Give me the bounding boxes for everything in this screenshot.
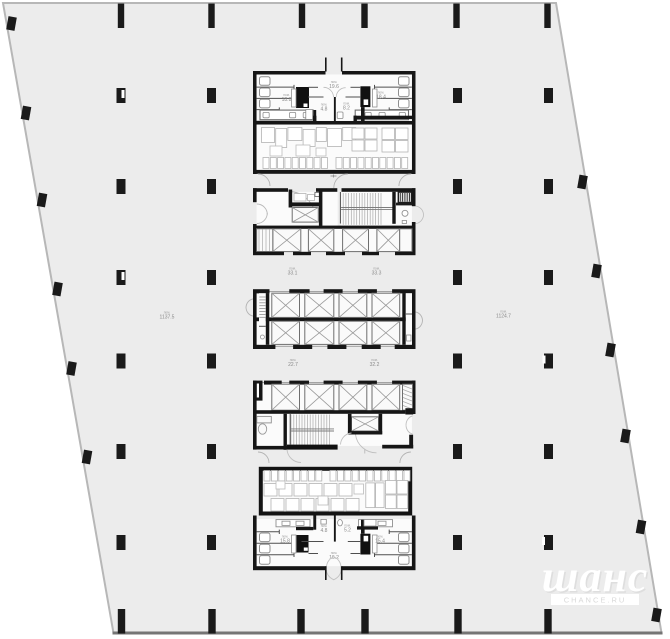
svg-text:32.2: 32.2: [370, 362, 380, 368]
svg-text:19.6: 19.6: [329, 84, 339, 90]
svg-text:15.4: 15.4: [375, 539, 385, 545]
svg-text:5.2: 5.2: [344, 528, 351, 534]
svg-text:1137.5: 1137.5: [160, 315, 175, 321]
svg-text:8.2: 8.2: [343, 106, 350, 112]
svg-text:4.8: 4.8: [321, 107, 328, 113]
svg-text:18.8: 18.8: [282, 97, 292, 103]
svg-text:33.3: 33.3: [372, 271, 382, 277]
svg-text:22.7: 22.7: [288, 362, 298, 368]
svg-text:18.4: 18.4: [376, 95, 386, 101]
svg-text:15.8: 15.8: [280, 539, 290, 545]
svg-text:33.1: 33.1: [288, 271, 298, 277]
svg-text:1124.7: 1124.7: [496, 314, 511, 320]
svg-text:шанс: шанс: [542, 552, 649, 601]
svg-text:4.8: 4.8: [321, 528, 328, 534]
svg-text:CHANCE.RU: CHANCE.RU: [564, 596, 627, 605]
